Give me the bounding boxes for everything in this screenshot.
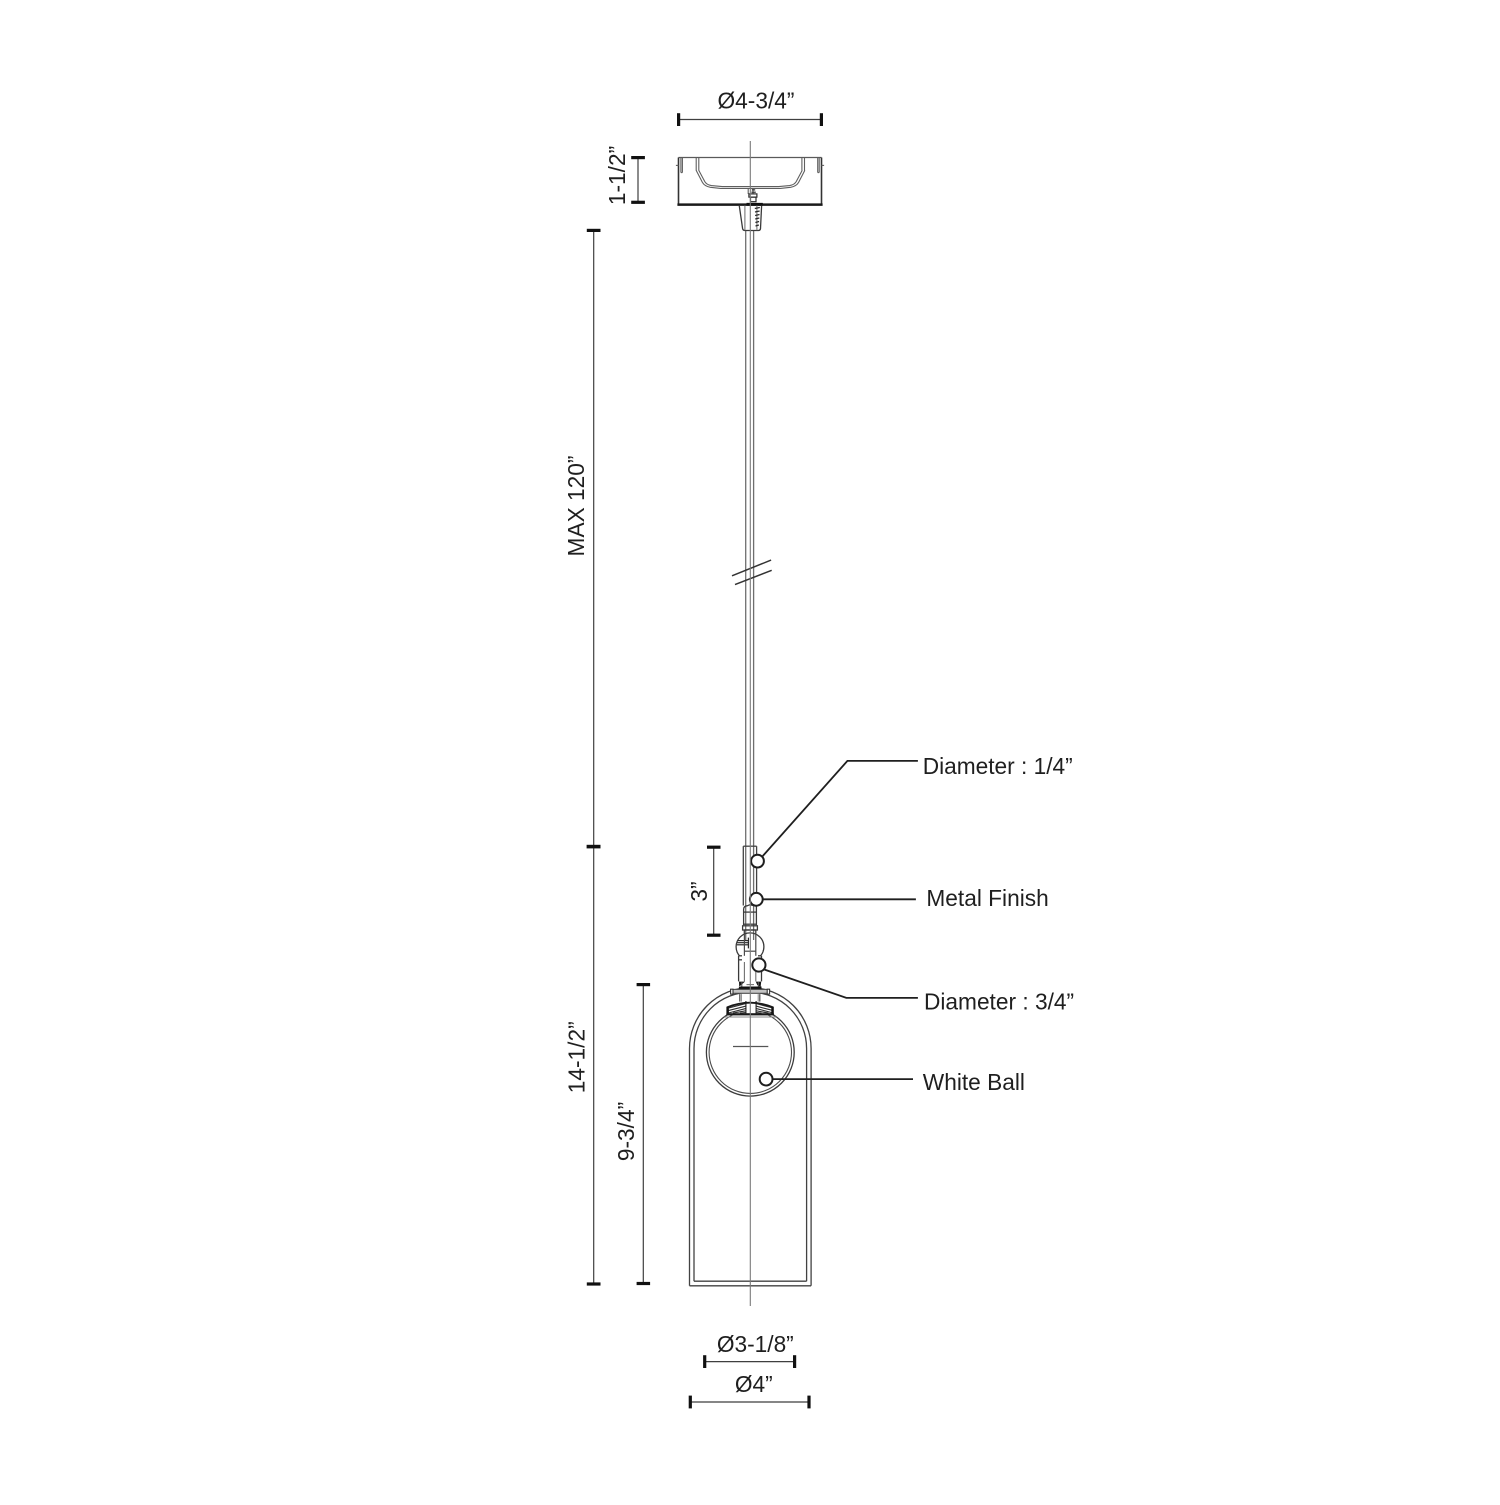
- svg-text:MAX 120”: MAX 120”: [563, 456, 589, 557]
- svg-text:Diameter : 1/4”: Diameter : 1/4”: [923, 753, 1073, 779]
- svg-text:3”: 3”: [686, 881, 712, 901]
- svg-text:Diameter : 3/4”: Diameter : 3/4”: [924, 989, 1074, 1015]
- svg-text:14-1/2”: 14-1/2”: [564, 1021, 590, 1093]
- svg-text:1-1/2”: 1-1/2”: [604, 146, 630, 205]
- svg-text:Ø3-1/8”: Ø3-1/8”: [717, 1331, 794, 1357]
- svg-text:Ø4”: Ø4”: [735, 1371, 773, 1397]
- svg-text:White Ball: White Ball: [923, 1069, 1025, 1095]
- svg-text:9-3/4”: 9-3/4”: [613, 1102, 639, 1161]
- svg-text:Metal Finish: Metal Finish: [926, 885, 1048, 911]
- svg-text:Ø4-3/4”: Ø4-3/4”: [718, 88, 795, 114]
